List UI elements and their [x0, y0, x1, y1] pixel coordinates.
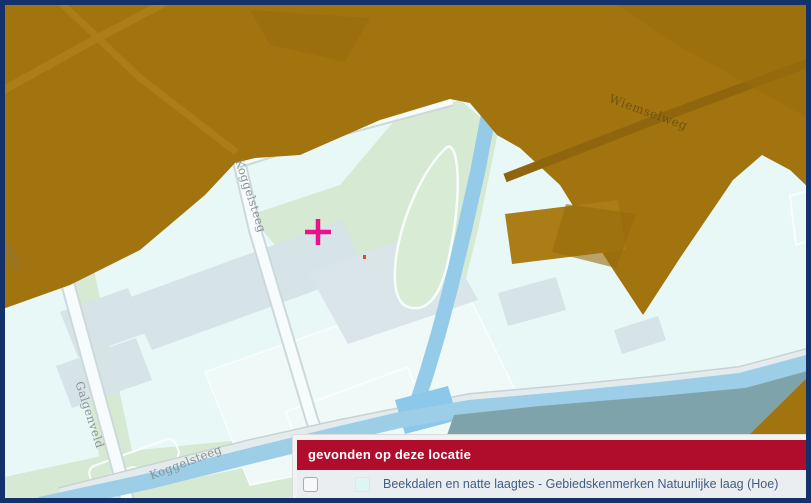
layer-label: Beekdalen en natte laagtes - Gebiedskenm… [383, 477, 778, 491]
layer-result-row[interactable]: Beekdalen en natte laagtes - Gebiedskenm… [297, 470, 806, 498]
popup-title: gevonden op deze locatie [297, 440, 806, 470]
red-dot-marker [363, 255, 366, 259]
results-popup: gevonden op deze locatie Beekdalen en na… [292, 434, 806, 498]
layer-color-swatch [355, 477, 370, 492]
map-canvas[interactable]: Koggelsteeg Galgenveld veld Koggelsteeg … [0, 0, 811, 503]
map-viewer-window: Koggelsteeg Galgenveld veld Koggelsteeg … [0, 0, 811, 503]
layer-checkbox[interactable] [303, 477, 318, 492]
